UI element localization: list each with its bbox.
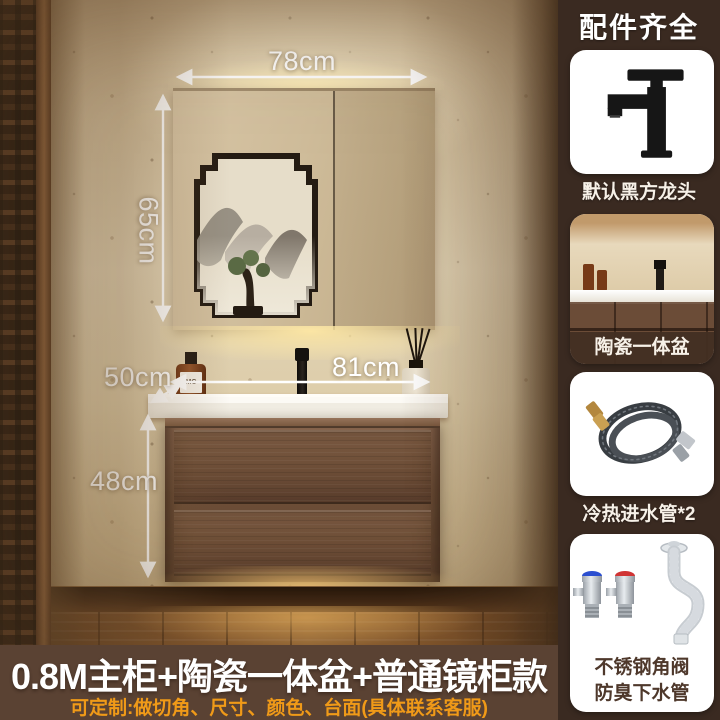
dim-counter-depth: 50cm: [104, 362, 172, 393]
hot-cold-hose-icon: [583, 384, 701, 484]
bathroom-scene: MC: [0, 0, 558, 645]
wall-corner-shadow: [51, 0, 85, 645]
right-wall-shadow: [512, 0, 558, 645]
chinese-lattice-door: [0, 0, 36, 645]
product-detail-image: MC: [0, 0, 720, 720]
accessory-card-hoses: [570, 372, 714, 496]
dim-mirror-width: 78cm: [268, 46, 336, 77]
mini-bottle: [597, 270, 607, 291]
angle-valve-drain-icon: [570, 538, 714, 650]
wood-floor: [36, 612, 558, 645]
accessory-caption-basin: 陶瓷一体盆: [594, 337, 689, 358]
mini-faucet: [656, 260, 664, 290]
vanity-cabinet: [165, 418, 440, 582]
accessories-sidebar: 配件齐全 默认黑方龙头: [558, 0, 720, 720]
soap-bottle-label: MC: [180, 372, 202, 393]
accessory-card-basin: 陶瓷一体盆: [570, 214, 714, 364]
footer-band: 0.8M主柜+陶瓷一体盆+普通镜柜款 可定制:做切角、尺寸、颜色、台面(具体联系…: [0, 645, 558, 720]
accessory-caption-drain-line2: 防臭下水管: [570, 678, 714, 705]
accessory-caption-basin-band: 陶瓷一体盆: [570, 332, 714, 364]
mirror-cabinet: [173, 88, 435, 330]
mini-ceramic-counter: [570, 290, 714, 302]
accessory-caption-hoses: 冷热进水管*2: [558, 499, 720, 526]
reflected-ink-painting: [185, 148, 327, 323]
accessory-card-drain: 不锈钢角阀 防臭下水管: [570, 534, 714, 712]
black-faucet-icon: [590, 60, 694, 164]
cabinet-drawer-top: [174, 430, 431, 504]
accessory-caption-drain-line1: 不锈钢角阀: [570, 652, 714, 679]
faucet-body: [297, 361, 307, 394]
door-frame: [36, 0, 51, 645]
accessory-caption-faucet: 默认黑方龙头: [558, 177, 720, 204]
mirror-door-seam: [333, 91, 335, 330]
dim-cabinet-height: 48cm: [90, 466, 158, 497]
mini-bottle: [583, 264, 594, 291]
accessory-card-faucet: [570, 50, 714, 174]
cabinet-drawer-bottom: [174, 510, 431, 576]
dim-counter-width: 81cm: [332, 352, 400, 383]
dim-mirror-height: 65cm: [133, 196, 164, 266]
basin-faucet: [294, 348, 310, 398]
ceramic-countertop: [148, 394, 448, 418]
cabinet-top-rail: [165, 418, 440, 428]
sidebar-header: 配件齐全: [558, 6, 720, 46]
customization-note: 可定制:做切角、尺寸、颜色、台面(具体联系客服): [0, 693, 558, 720]
baseboard: [36, 586, 558, 613]
faucet-handle: [295, 348, 309, 361]
mirror-right-door: [335, 91, 435, 330]
